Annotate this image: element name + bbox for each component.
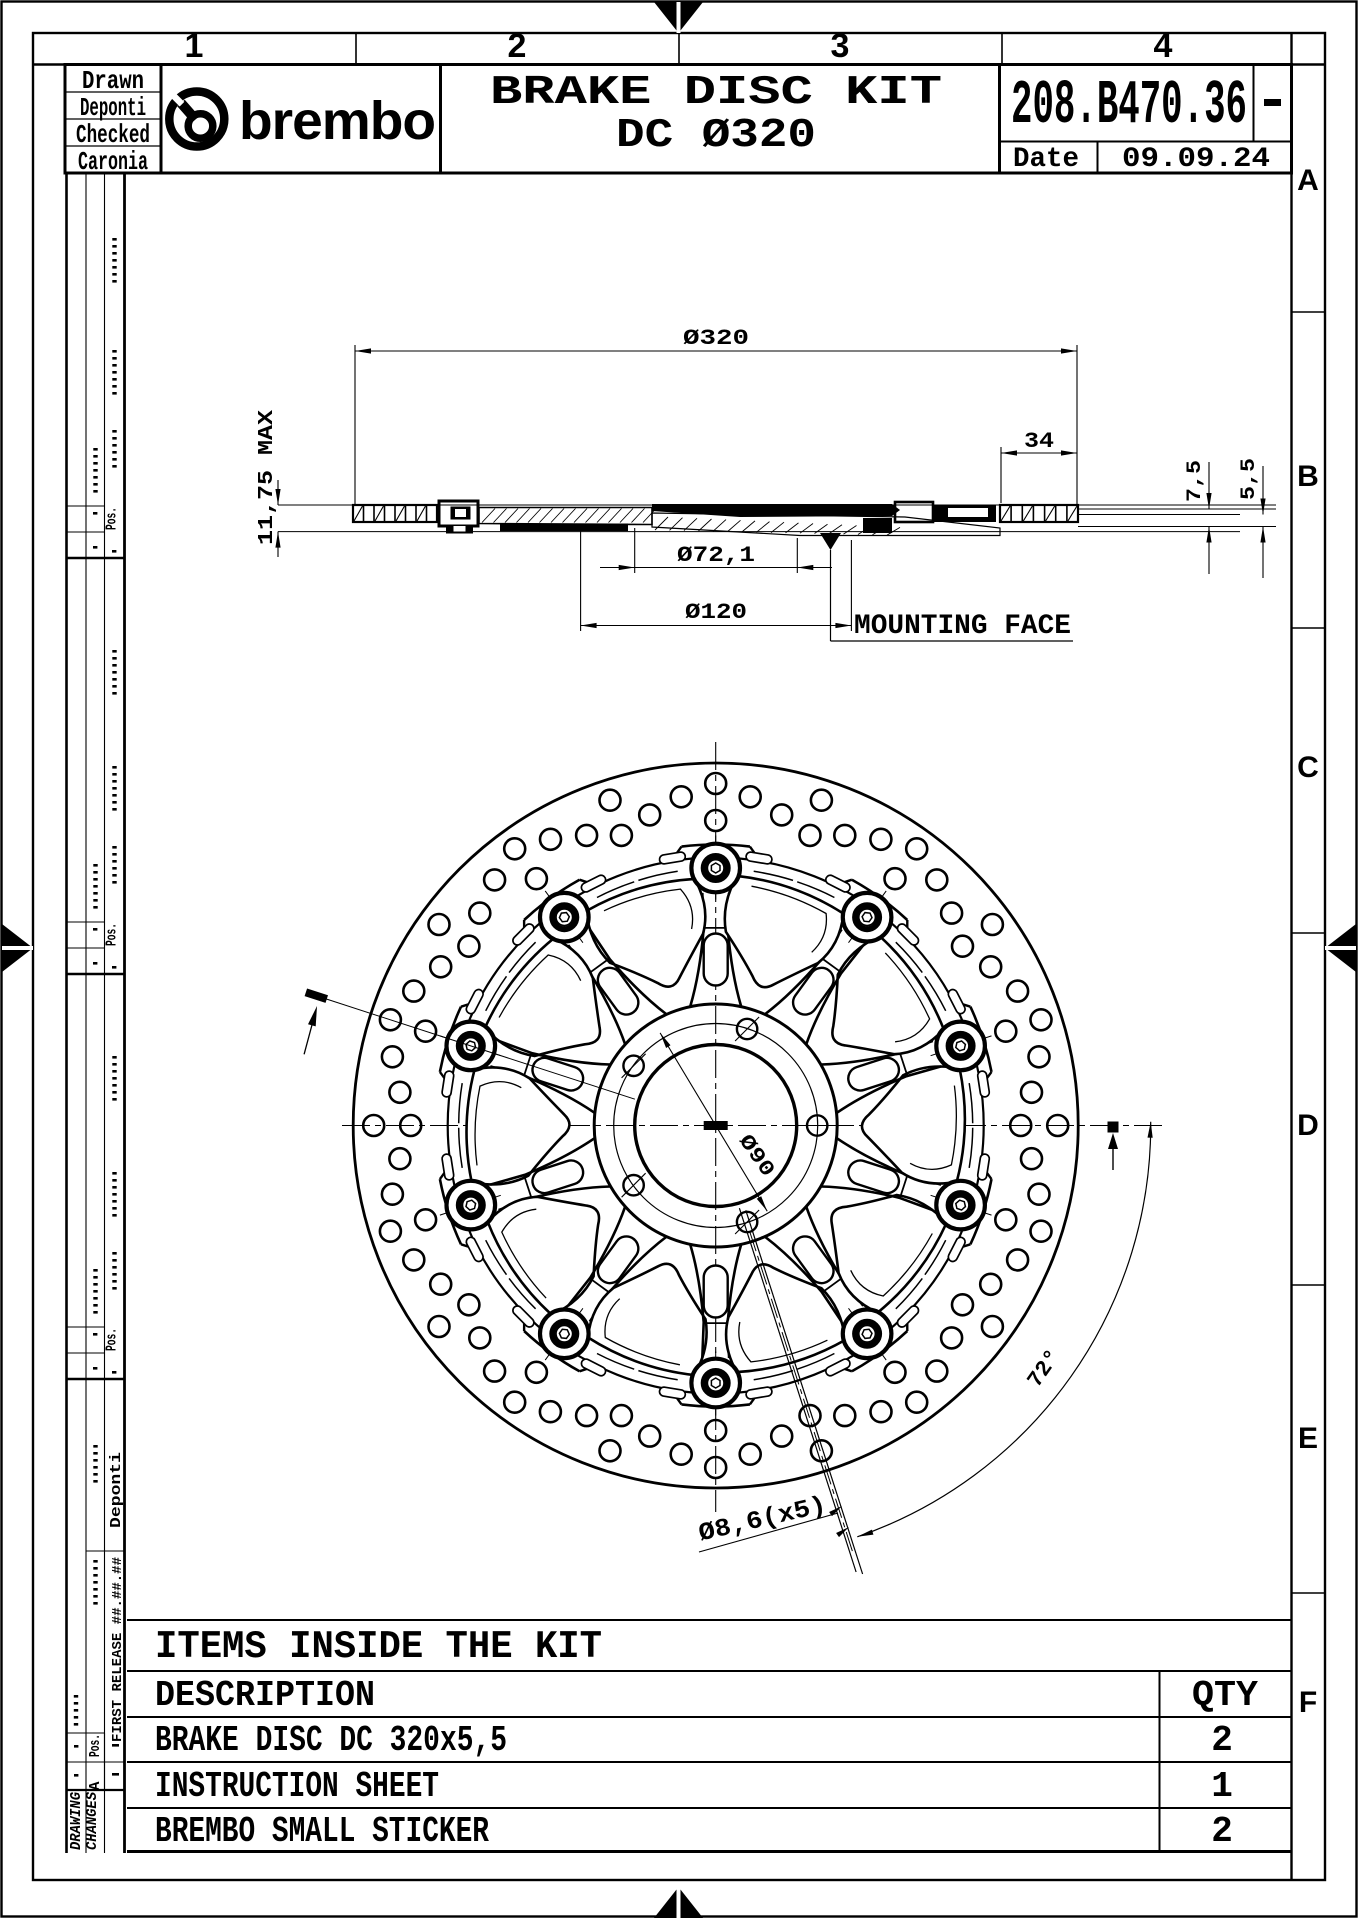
svg-text:DRAWING: DRAWING bbox=[68, 1792, 85, 1850]
svg-text:Pos.: Pos. bbox=[87, 1734, 104, 1757]
svg-text:Deponti: Deponti bbox=[80, 93, 146, 123]
svg-text:2: 2 bbox=[1211, 1720, 1233, 1761]
svg-text:F: F bbox=[1299, 1686, 1317, 1719]
svg-text:09.09.24: 09.09.24 bbox=[1122, 144, 1270, 175]
svg-text:1: 1 bbox=[1211, 1766, 1233, 1807]
svg-text:C: C bbox=[1297, 751, 1319, 784]
svg-text:BREMBO SMALL STICKER: BREMBO SMALL STICKER bbox=[155, 1811, 489, 1852]
svg-text:Checked: Checked bbox=[76, 120, 150, 150]
svg-text:FIRST RELEASE ##.##.##: FIRST RELEASE ##.##.## bbox=[110, 1557, 126, 1742]
svg-text:Ø72,1: Ø72,1 bbox=[677, 543, 755, 568]
svg-text:34: 34 bbox=[1024, 429, 1054, 454]
svg-text:3: 3 bbox=[831, 27, 850, 65]
svg-text:Caronia: Caronia bbox=[78, 147, 148, 177]
svg-text:brembo: brembo bbox=[239, 91, 435, 151]
svg-text:5,5: 5,5 bbox=[1238, 458, 1261, 500]
svg-text:Ø320: Ø320 bbox=[683, 326, 749, 351]
svg-text:A: A bbox=[1297, 164, 1319, 197]
svg-text:BRAKE DISC DC 320x5,5: BRAKE DISC DC 320x5,5 bbox=[155, 1720, 507, 1761]
svg-text:DC Ø320: DC Ø320 bbox=[616, 113, 816, 159]
svg-text:208.B470.36: 208.B470.36 bbox=[1011, 70, 1247, 141]
svg-text:DESCRIPTION: DESCRIPTION bbox=[155, 1675, 375, 1716]
svg-text:D: D bbox=[1297, 1109, 1319, 1142]
svg-text:Pos.: Pos. bbox=[104, 1328, 121, 1351]
svg-text:CHANGES: CHANGES bbox=[84, 1792, 101, 1850]
svg-text:4: 4 bbox=[1154, 27, 1173, 65]
svg-text:Deponti: Deponti bbox=[108, 1452, 125, 1528]
svg-text:Drawn: Drawn bbox=[82, 66, 144, 96]
svg-text:7,5: 7,5 bbox=[1184, 460, 1207, 502]
svg-text:2: 2 bbox=[1211, 1811, 1233, 1852]
svg-text:Pos.: Pos. bbox=[104, 507, 121, 530]
svg-text:2: 2 bbox=[508, 27, 527, 65]
svg-text:ITEMS INSIDE THE KIT: ITEMS INSIDE THE KIT bbox=[155, 1625, 602, 1669]
svg-text:11,75 MAX: 11,75 MAX bbox=[256, 410, 279, 545]
svg-text:INSTRUCTION SHEET: INSTRUCTION SHEET bbox=[155, 1766, 439, 1807]
svg-text:Date: Date bbox=[1013, 144, 1079, 175]
svg-text:1: 1 bbox=[185, 27, 204, 65]
svg-text:MOUNTING FACE: MOUNTING FACE bbox=[854, 611, 1071, 642]
svg-text:QTY: QTY bbox=[1192, 1675, 1258, 1716]
svg-text:B: B bbox=[1297, 460, 1319, 493]
svg-text:Ø120: Ø120 bbox=[685, 600, 747, 625]
svg-text:BRAKE DISC KIT: BRAKE DISC KIT bbox=[490, 70, 942, 116]
svg-text:E: E bbox=[1298, 1422, 1318, 1455]
svg-text:Pos.: Pos. bbox=[104, 923, 121, 946]
svg-text:A: A bbox=[87, 1781, 104, 1790]
